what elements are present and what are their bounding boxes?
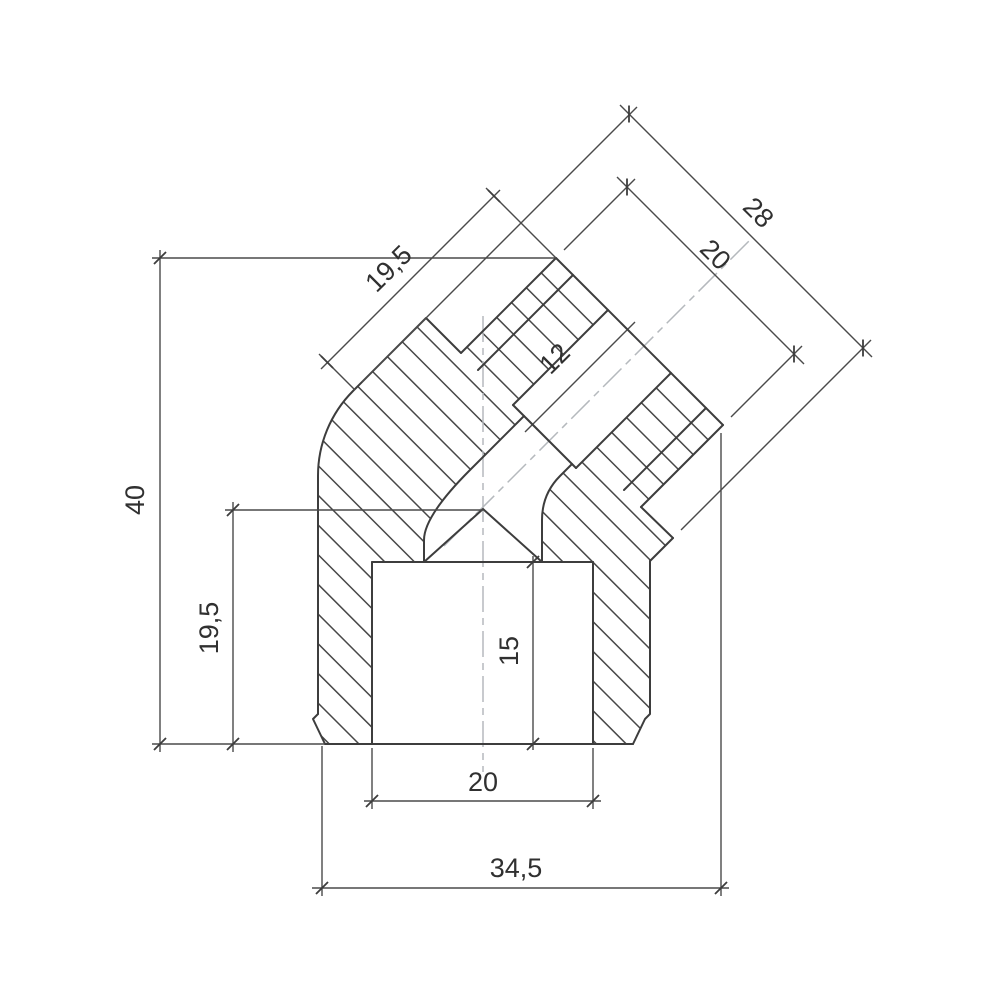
dim-34-5-label: 34,5 bbox=[490, 853, 543, 883]
drawing-background bbox=[0, 0, 1000, 1000]
dim-19-5-left-label: 19,5 bbox=[194, 602, 224, 655]
technical-drawing-page: 4019,5152034,5282019,512 bbox=[0, 0, 1000, 1000]
dim-40-label: 40 bbox=[120, 485, 150, 515]
elbow-fitting-section-drawing: 4019,5152034,5282019,512 bbox=[0, 0, 1000, 1000]
dim-15-label: 15 bbox=[494, 636, 524, 666]
dim-20-bottom-label: 20 bbox=[468, 767, 498, 797]
